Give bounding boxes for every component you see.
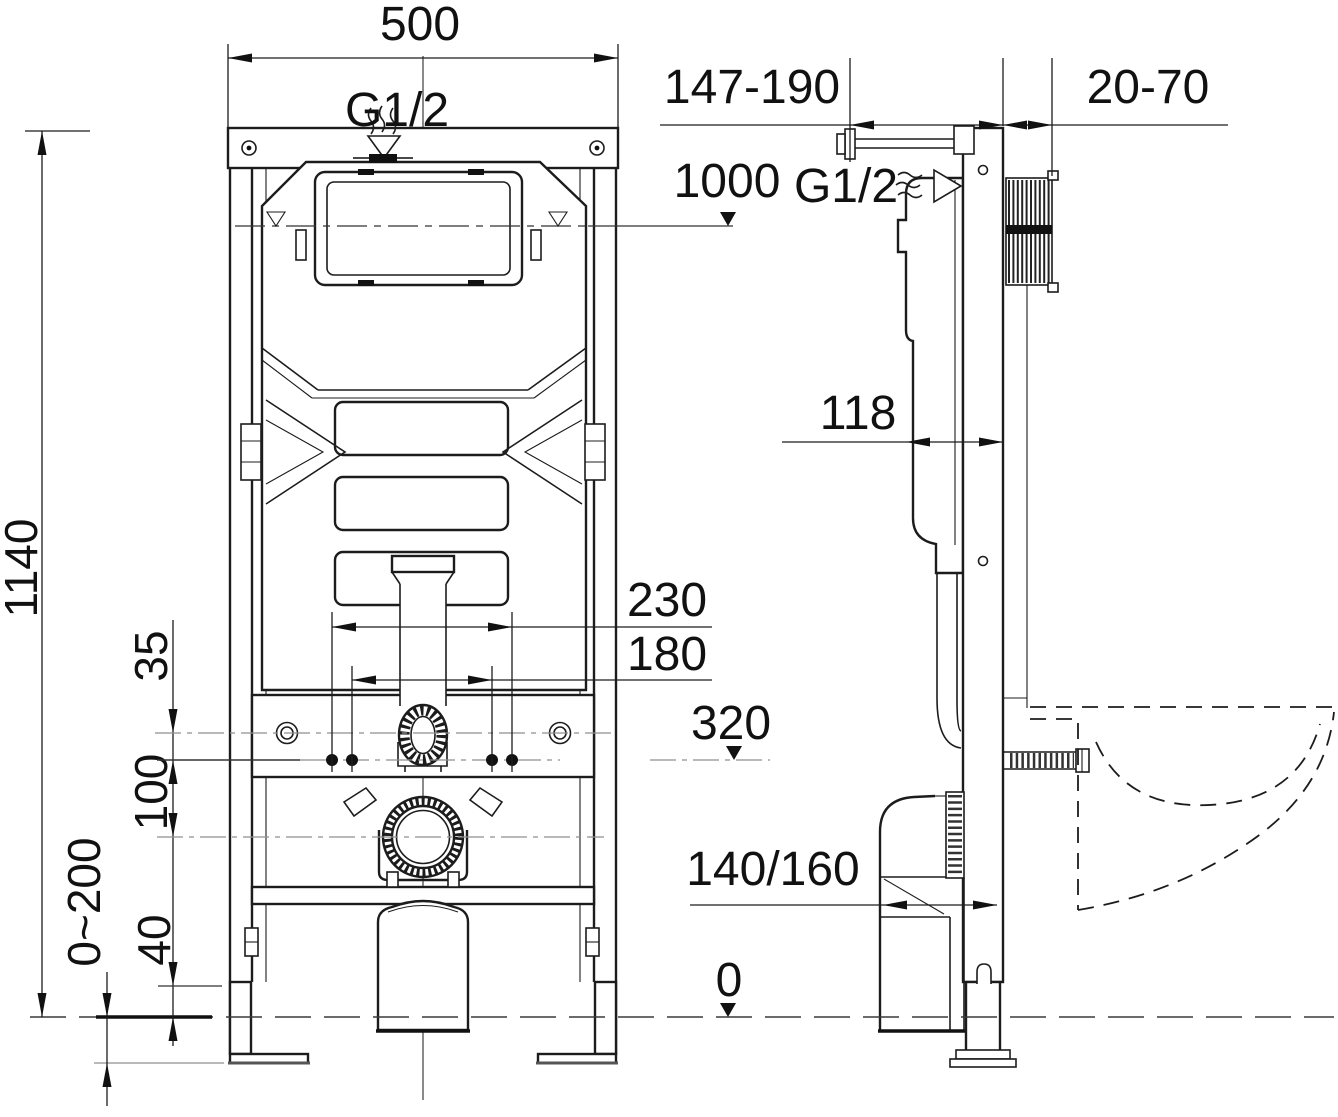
technical-drawing: 500 G1/2 1140 35 100 40 0~200 xyxy=(0,0,1338,1112)
front-view xyxy=(228,56,618,1100)
dim-flush-level-height: 1000 xyxy=(674,155,781,208)
waste-pipe xyxy=(376,901,470,1031)
toilet-bowl-outline xyxy=(1030,707,1334,910)
fixing-bolt-side xyxy=(1003,749,1089,772)
window-tab-left xyxy=(296,230,306,260)
dim-floor-level: 0 xyxy=(716,954,743,1007)
dim-fixing-spacing-inner: 180 xyxy=(627,628,707,681)
frame-post xyxy=(963,128,1003,982)
dim-total-height: 1140 xyxy=(0,519,47,618)
clamp-wing-left xyxy=(344,788,376,816)
wall-finish-hatch xyxy=(1006,171,1058,292)
dim-leg-adjustment: 0~200 xyxy=(58,837,110,966)
label-inlet-thread-front: G1/2 xyxy=(345,84,449,137)
dim-cistern-depth: 118 xyxy=(820,387,897,440)
leg-left xyxy=(230,982,251,1054)
dim-inlet-to-drain: 100 xyxy=(125,754,177,831)
leg-right xyxy=(595,982,616,1054)
dim-fixing-spacing-outer: 230 xyxy=(627,574,707,627)
dim-wall-finish-thickness: 20-70 xyxy=(1087,61,1210,114)
clip-right xyxy=(585,424,605,480)
drain-elbow-side xyxy=(878,792,966,1031)
dim-drain-outlet-size: 140/160 xyxy=(686,843,860,896)
dim-inlet-drop: 35 xyxy=(125,630,177,681)
foot-side xyxy=(956,1050,1010,1059)
leg-hook xyxy=(977,964,991,984)
wall-anchor-rod xyxy=(837,126,974,159)
label-inlet-thread-side: G1/2 xyxy=(794,160,898,213)
dim-fixing-bolt-height: 320 xyxy=(691,697,771,750)
dimensions: 500 G1/2 1140 35 100 40 0~200 xyxy=(0,0,1334,1106)
clip-left xyxy=(241,424,261,480)
drawing-canvas: 500 G1/2 1140 35 100 40 0~200 xyxy=(0,0,1338,1112)
clamp-wing-right xyxy=(470,788,502,816)
side-view xyxy=(837,126,1334,1067)
cistern-side-profile xyxy=(898,178,963,573)
dim-base-clearance: 40 xyxy=(128,914,180,965)
dim-frame-width: 500 xyxy=(380,0,460,51)
dim-frame-to-wall-depth: 147-190 xyxy=(664,61,840,114)
window-tab-right xyxy=(531,230,541,260)
